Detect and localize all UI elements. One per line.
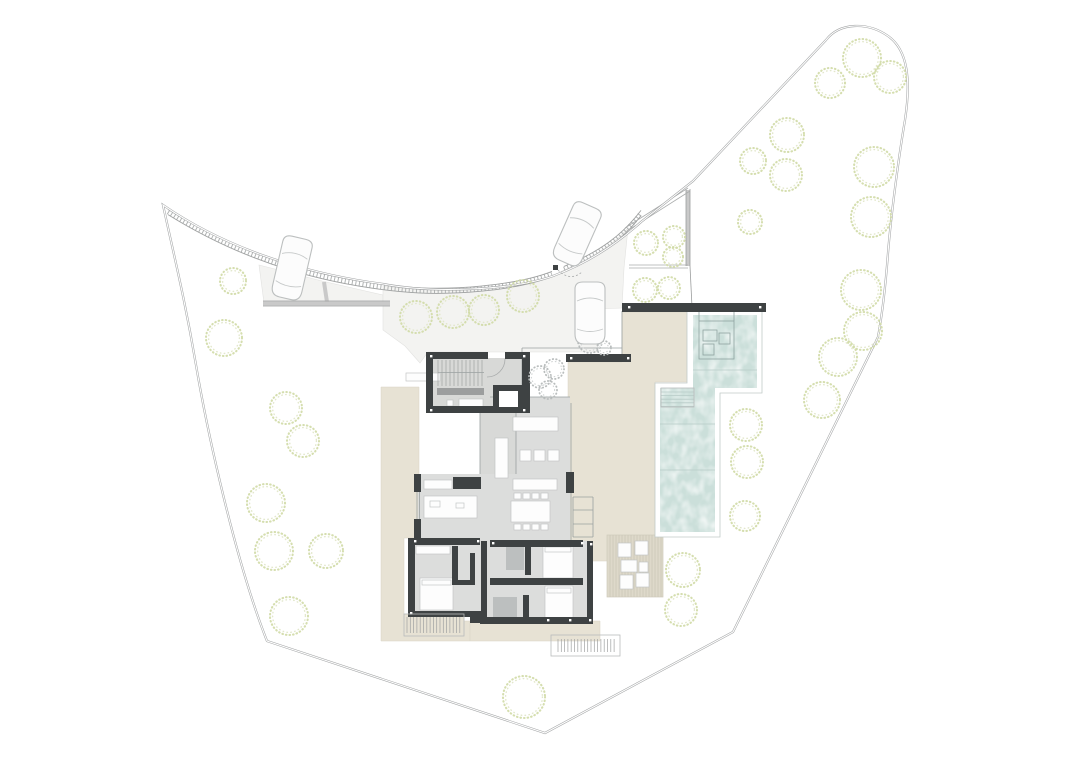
- furniture-item: [532, 524, 539, 530]
- furniture-item: [523, 493, 530, 499]
- site-plan-drawing: [0, 0, 1080, 764]
- tree-icon: [804, 382, 840, 418]
- half-wall: [437, 388, 484, 395]
- tree-inner-icon: [741, 213, 760, 232]
- tree-icon: [738, 210, 762, 234]
- furniture-item: [620, 575, 633, 589]
- column-post-dot: [581, 542, 583, 544]
- furniture-item: [406, 373, 440, 381]
- wall-segment: [414, 474, 421, 492]
- half-walls: [437, 388, 484, 395]
- wall-segment: [622, 303, 766, 312]
- furniture-item: [424, 480, 452, 489]
- column-post-dot: [569, 619, 571, 621]
- patio-shaft: [499, 391, 518, 407]
- tree-icon: [730, 501, 760, 531]
- tree-inner-icon: [844, 273, 879, 308]
- tree-inner-icon: [273, 395, 300, 422]
- tree-icon: [255, 532, 293, 570]
- column-post-dot: [627, 357, 629, 359]
- column-post-dot: [523, 355, 525, 357]
- courtyard-tree-inner-icon: [531, 368, 548, 385]
- wall-segment: [470, 611, 481, 623]
- car-icon: [575, 282, 605, 344]
- tree-inner-icon: [734, 449, 761, 476]
- gate-post: [553, 265, 558, 270]
- tree-inner-icon: [273, 600, 306, 633]
- furniture-item: [547, 588, 571, 593]
- tree-icon: [740, 148, 766, 174]
- tree-inner-icon: [743, 151, 764, 172]
- furniture-item: [534, 450, 545, 461]
- courtyard-tree-inner-icon: [546, 361, 561, 376]
- tree-icon: [731, 446, 763, 478]
- column-post-dot: [547, 619, 549, 621]
- tree-icon: [270, 597, 308, 635]
- tree-icon: [666, 553, 700, 587]
- tree-icon: [815, 68, 845, 98]
- tree-icon: [819, 338, 857, 376]
- furniture-item: [636, 573, 649, 587]
- tree-icon: [634, 231, 658, 255]
- column-post-dot: [628, 306, 630, 308]
- tree-icon: [665, 594, 697, 626]
- shower-tile: [506, 545, 524, 570]
- tree-inner-icon: [506, 679, 543, 716]
- hedge: [625, 188, 688, 228]
- tree-icon: [851, 197, 891, 237]
- furniture-item: [523, 524, 530, 530]
- wall-segment: [566, 354, 631, 362]
- tree-icon: [770, 159, 802, 191]
- tree-icon: [874, 61, 906, 93]
- tree-inner-icon: [847, 315, 880, 348]
- furniture-item: [459, 399, 483, 407]
- tree-inner-icon: [807, 385, 838, 416]
- tree-inner-icon: [661, 280, 678, 297]
- tree-inner-icon: [666, 250, 681, 265]
- tree-icon: [206, 320, 242, 356]
- furniture-item: [545, 547, 571, 552]
- shower-tile: [493, 597, 517, 620]
- tree-inner-icon: [636, 281, 655, 300]
- furniture-item: [430, 501, 440, 507]
- tree-icon: [770, 118, 804, 152]
- tree-inner-icon: [312, 537, 341, 566]
- tree-inner-icon: [258, 535, 291, 568]
- tree-inner-icon: [669, 556, 698, 585]
- column-post-dot: [589, 619, 591, 621]
- wall-segment: [426, 352, 433, 413]
- tree-inner-icon: [290, 428, 317, 455]
- tree-inner-icon: [637, 234, 656, 253]
- patio-shaft-floor: [499, 391, 518, 407]
- wall-segment: [525, 543, 531, 575]
- tree-inner-icon: [773, 121, 802, 150]
- furniture-item: [513, 479, 557, 490]
- furniture-item: [514, 524, 521, 530]
- furniture-item: [495, 438, 508, 478]
- furniture-item: [456, 503, 464, 508]
- furniture-item: [447, 400, 453, 406]
- wall-segment: [452, 546, 458, 582]
- column-post-dot: [570, 357, 572, 359]
- wall-segment: [480, 617, 593, 624]
- gate-post: [553, 265, 558, 270]
- tree-icon: [309, 534, 343, 568]
- tree-icon: [287, 425, 319, 457]
- furniture-item: [541, 493, 548, 499]
- tree-inner-icon: [846, 42, 879, 75]
- furniture-item: [548, 450, 559, 461]
- furniture-item: [532, 493, 539, 499]
- tree-inner-icon: [854, 200, 889, 235]
- tree-inner-icon: [818, 71, 843, 96]
- wall-segment: [470, 553, 475, 583]
- wall-segment: [412, 538, 480, 545]
- tree-icon: [220, 268, 246, 294]
- furniture-item: [639, 562, 648, 572]
- wall-segment: [587, 541, 593, 624]
- tree-inner-icon: [209, 323, 240, 354]
- tree-icon: [633, 278, 657, 302]
- column-post-dot: [759, 306, 761, 308]
- tree-icon: [841, 270, 881, 310]
- wall-segment: [481, 541, 487, 617]
- wall-segment: [452, 580, 475, 585]
- tree-inner-icon: [733, 504, 758, 529]
- retain-edge: [690, 266, 692, 307]
- wall-segment: [490, 540, 583, 547]
- entrance-hall-floor: [432, 358, 522, 474]
- tree-inner-icon: [822, 341, 855, 374]
- furniture-item: [422, 580, 451, 585]
- furniture-item: [520, 450, 531, 461]
- wall-segment: [408, 538, 415, 614]
- column-post-dot: [492, 542, 494, 544]
- column-post-dot: [430, 409, 432, 411]
- tree-inner-icon: [877, 64, 904, 91]
- tree-icon: [854, 147, 894, 187]
- column-post-dot: [414, 540, 416, 542]
- furniture-item: [621, 560, 637, 572]
- wall-segment: [426, 352, 488, 359]
- tree-icon: [843, 39, 881, 77]
- tree-inner-icon: [223, 271, 244, 292]
- column-post-dot: [523, 409, 525, 411]
- furniture-item: [514, 493, 521, 499]
- column-post-dot: [430, 355, 432, 357]
- column-post-dot: [590, 543, 592, 545]
- curb-hatch-west: [168, 212, 552, 291]
- wall-segment: [414, 519, 421, 541]
- furniture-item: [511, 501, 550, 522]
- site-plan-canvas: [0, 0, 1080, 764]
- tree-icon: [730, 409, 762, 441]
- furniture-item: [618, 543, 631, 557]
- furniture-item: [513, 417, 558, 431]
- tree-inner-icon: [733, 412, 760, 439]
- tree-icon: [247, 484, 285, 522]
- tree-icon: [503, 676, 545, 718]
- wall-segment: [523, 595, 529, 621]
- furniture-item: [635, 541, 648, 555]
- tree-inner-icon: [250, 487, 283, 520]
- tree-icon: [844, 312, 882, 350]
- furniture-item: [541, 524, 548, 530]
- tree-inner-icon: [666, 229, 683, 246]
- furniture-item: [416, 546, 450, 554]
- courtyard-tree-inner-icon: [541, 383, 554, 396]
- column-post-dot: [477, 540, 479, 542]
- wall-segment: [490, 578, 583, 585]
- curb-edge: [168, 209, 552, 288]
- tree-icon: [270, 392, 302, 424]
- tree-inner-icon: [668, 597, 695, 624]
- wall-segment: [453, 477, 481, 489]
- wall-segment: [566, 472, 574, 493]
- tree-inner-icon: [857, 150, 892, 185]
- tree-inner-icon: [773, 162, 800, 189]
